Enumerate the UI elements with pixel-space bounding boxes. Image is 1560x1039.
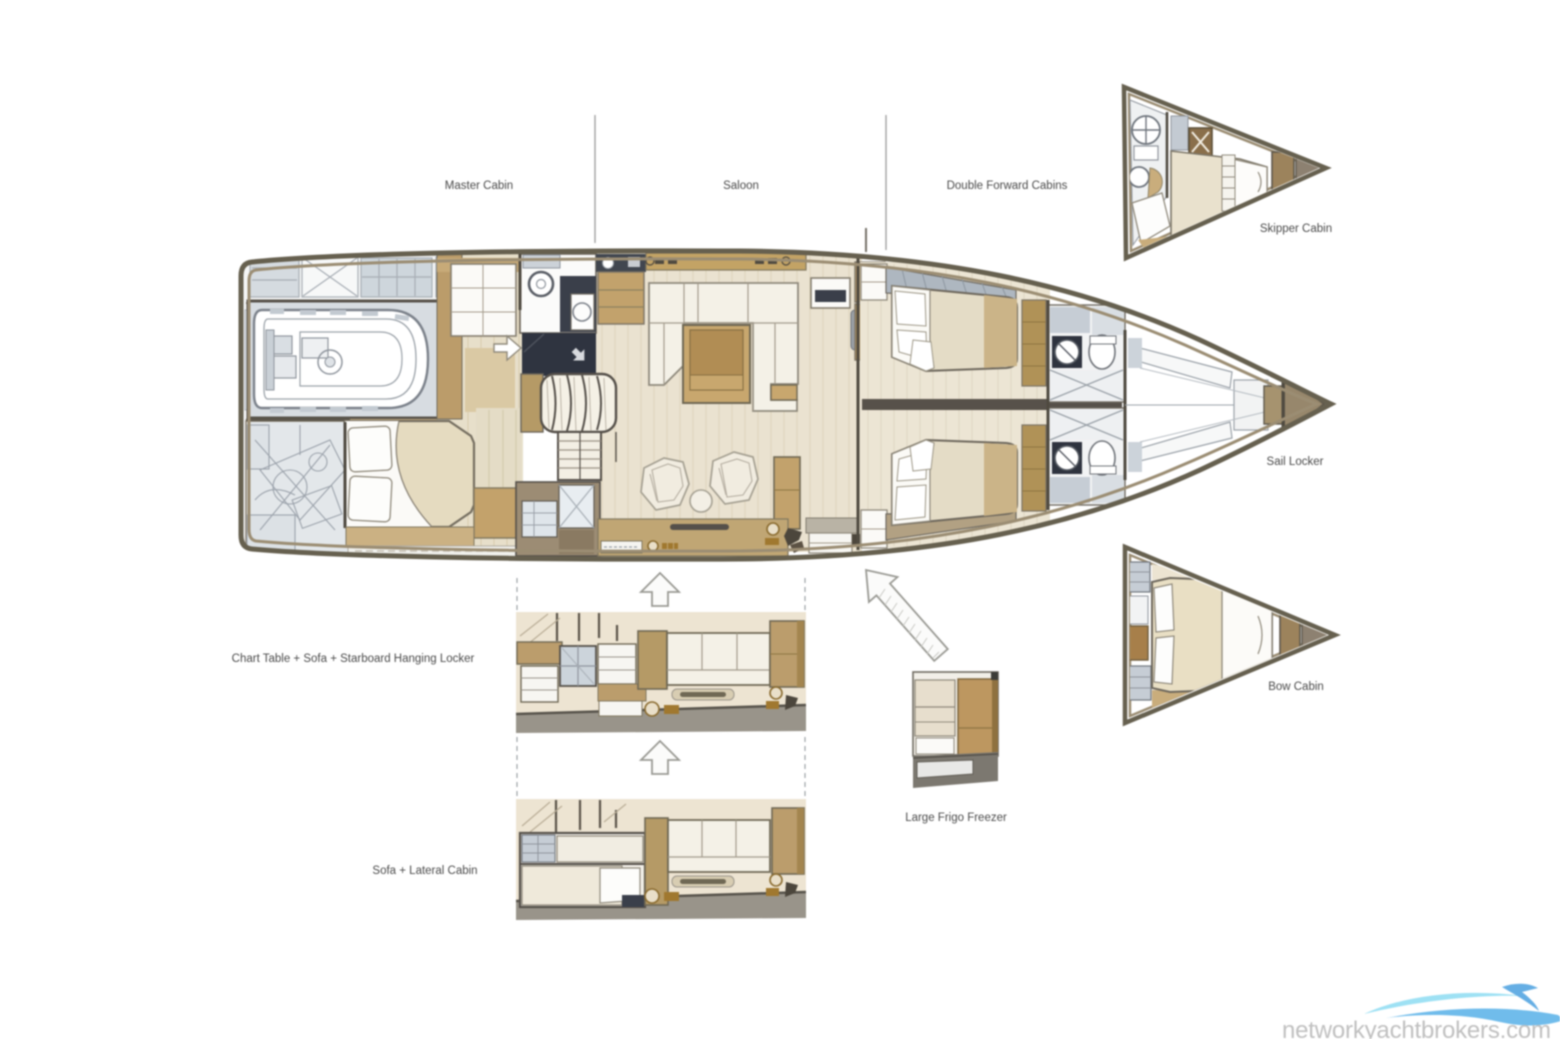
svg-text:Saloon: Saloon bbox=[723, 180, 759, 192]
svg-text:Double Forward Cabins: Double Forward Cabins bbox=[947, 180, 1068, 192]
svg-text:Master Cabin: Master Cabin bbox=[445, 180, 513, 192]
svg-text:Skipper Cabin: Skipper Cabin bbox=[1260, 223, 1332, 235]
svg-text:Large Frigo Freezer: Large Frigo Freezer bbox=[905, 812, 1007, 824]
svg-text:networkyachtbrokers.com: networkyachtbrokers.com bbox=[1282, 1017, 1551, 1039]
svg-text:Sofa + Lateral Cabin: Sofa + Lateral Cabin bbox=[372, 865, 477, 877]
svg-text:Bow Cabin: Bow Cabin bbox=[1268, 681, 1324, 693]
svg-text:Sail Locker: Sail Locker bbox=[1267, 456, 1324, 468]
svg-text:Chart Table + Sofa + Starboard: Chart Table + Sofa + Starboard Hanging L… bbox=[232, 653, 475, 665]
